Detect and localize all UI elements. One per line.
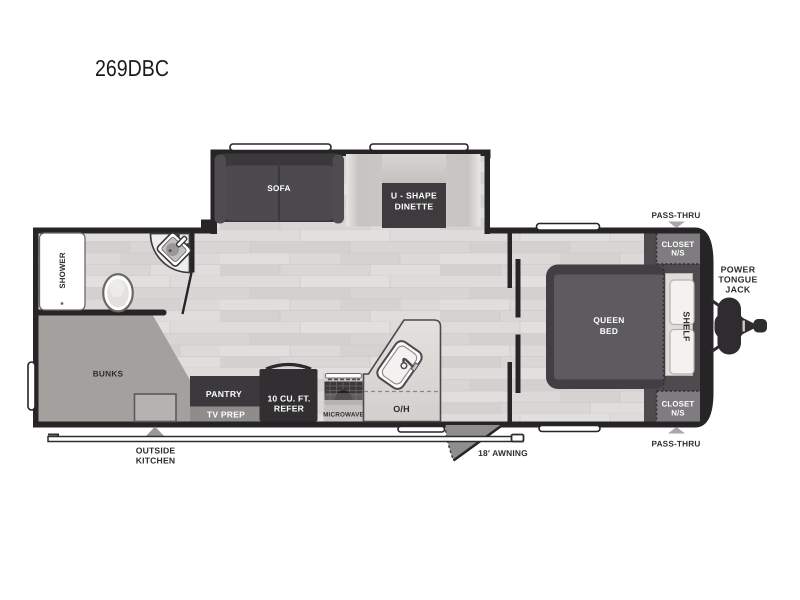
svg-text:PASS-THRU: PASS-THRU (652, 440, 701, 449)
svg-text:REFER: REFER (274, 404, 305, 414)
svg-text:269DBC: 269DBC (95, 55, 169, 81)
svg-text:TV PREP: TV PREP (207, 410, 245, 420)
svg-text:QUEEN: QUEEN (593, 315, 624, 325)
svg-text:SHELF: SHELF (682, 311, 692, 342)
svg-text:PANTRY: PANTRY (206, 389, 242, 399)
svg-text:N/S: N/S (671, 249, 685, 258)
svg-text:O/H: O/H (393, 404, 410, 414)
svg-text:SOFA: SOFA (267, 184, 291, 193)
svg-text:SHOWER: SHOWER (58, 252, 67, 288)
svg-text:CLOSET: CLOSET (662, 400, 695, 409)
svg-text:BUNKS: BUNKS (93, 370, 124, 379)
svg-text:PASS-THRU: PASS-THRU (652, 211, 701, 220)
svg-text:U - SHAPE: U - SHAPE (391, 191, 437, 201)
svg-text:BED: BED (600, 326, 619, 336)
svg-text:N/S: N/S (671, 409, 685, 418)
svg-text:TONGUE: TONGUE (718, 275, 757, 285)
svg-text:DINETTE: DINETTE (395, 202, 434, 212)
svg-text:POWER: POWER (721, 265, 756, 275)
svg-text:OUTSIDE: OUTSIDE (136, 446, 176, 456)
svg-text:JACK: JACK (725, 285, 750, 295)
svg-text:10 CU. FT.: 10 CU. FT. (267, 394, 310, 404)
svg-text:MICROWAVE: MICROWAVE (323, 412, 364, 419)
svg-text:KITCHEN: KITCHEN (136, 456, 176, 466)
svg-text:18′ AWNING: 18′ AWNING (478, 448, 528, 458)
